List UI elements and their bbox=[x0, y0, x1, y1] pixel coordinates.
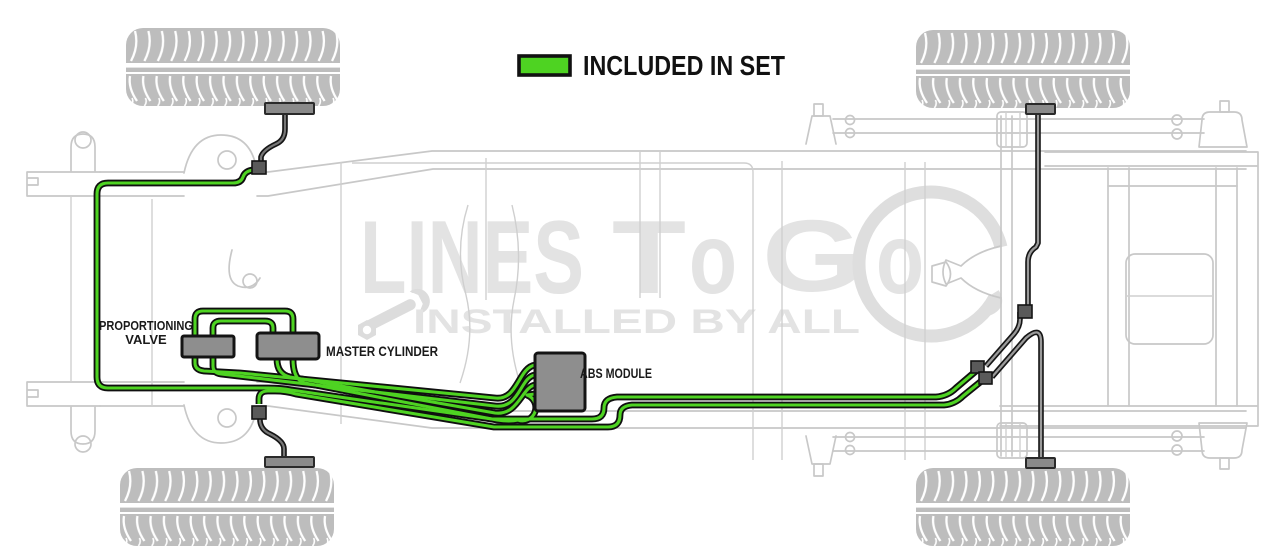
legend-swatch bbox=[519, 56, 570, 75]
hose-connector-front-left bbox=[252, 161, 266, 174]
legend: INCLUDED IN SET bbox=[519, 50, 785, 81]
rear-axle-tube bbox=[1001, 116, 1012, 456]
proportioning-valve bbox=[182, 336, 234, 357]
frame-rail-top-inner bbox=[100, 169, 1246, 196]
watermark-swoosh-ring bbox=[834, 167, 1029, 362]
tire-rear-left bbox=[916, 30, 1130, 108]
wheel-bracket-rear-left bbox=[1026, 104, 1055, 114]
legend-label: INCLUDED IN SET bbox=[583, 50, 785, 81]
differential-yoke bbox=[932, 262, 951, 286]
hose-connector-front-right bbox=[252, 406, 266, 419]
watermark-tagline: INSTALLED BY ALL bbox=[413, 303, 860, 341]
frame-horn-top bbox=[27, 172, 100, 196]
rear-axle-junction bbox=[1018, 305, 1032, 318]
master-cylinder-label: MASTER CYLINDER bbox=[326, 344, 438, 359]
watermark-text-o2: o bbox=[876, 203, 924, 315]
wheel-bracket-front-right bbox=[265, 457, 314, 467]
frame-horn-bottom bbox=[27, 382, 100, 406]
watermark-text-lines: LINES bbox=[360, 200, 584, 316]
tire-front-left bbox=[126, 28, 340, 106]
brake-line-diagram: LINES T o G o INSTALLED BY ALL bbox=[0, 0, 1280, 558]
abs-module-label: ABS MODULE bbox=[580, 366, 652, 381]
abs-module bbox=[535, 353, 585, 411]
tire-rear-right bbox=[916, 468, 1130, 546]
master-cylinder bbox=[257, 333, 319, 359]
frame-rail-bottom-outer bbox=[100, 406, 1246, 428]
rear-line-connector-lower bbox=[979, 372, 992, 384]
watermark: LINES T o G o INSTALLED BY ALL bbox=[358, 167, 1028, 362]
tow-tab-bottom bbox=[71, 407, 95, 444]
wheel-bracket-front-left bbox=[265, 103, 314, 114]
watermark-text-g: G bbox=[762, 199, 862, 313]
proportioning-valve-label-line2: VALVE bbox=[125, 332, 167, 347]
wheel-bracket-rear-right bbox=[1026, 458, 1055, 468]
differential bbox=[943, 246, 1001, 298]
tire-front-right bbox=[120, 468, 334, 546]
mid-bracket bbox=[229, 250, 260, 287]
watermark-text-o1: o bbox=[689, 203, 737, 315]
watermark-text-t: T bbox=[612, 200, 686, 316]
suspension-hump-bottom-hole bbox=[218, 409, 236, 427]
proportioning-valve-label-line1: PROPORTIONING bbox=[99, 318, 193, 333]
suspension-hump-top-hole bbox=[218, 151, 236, 169]
diagram-canvas: LINES T o G o INSTALLED BY ALL bbox=[0, 0, 1280, 558]
